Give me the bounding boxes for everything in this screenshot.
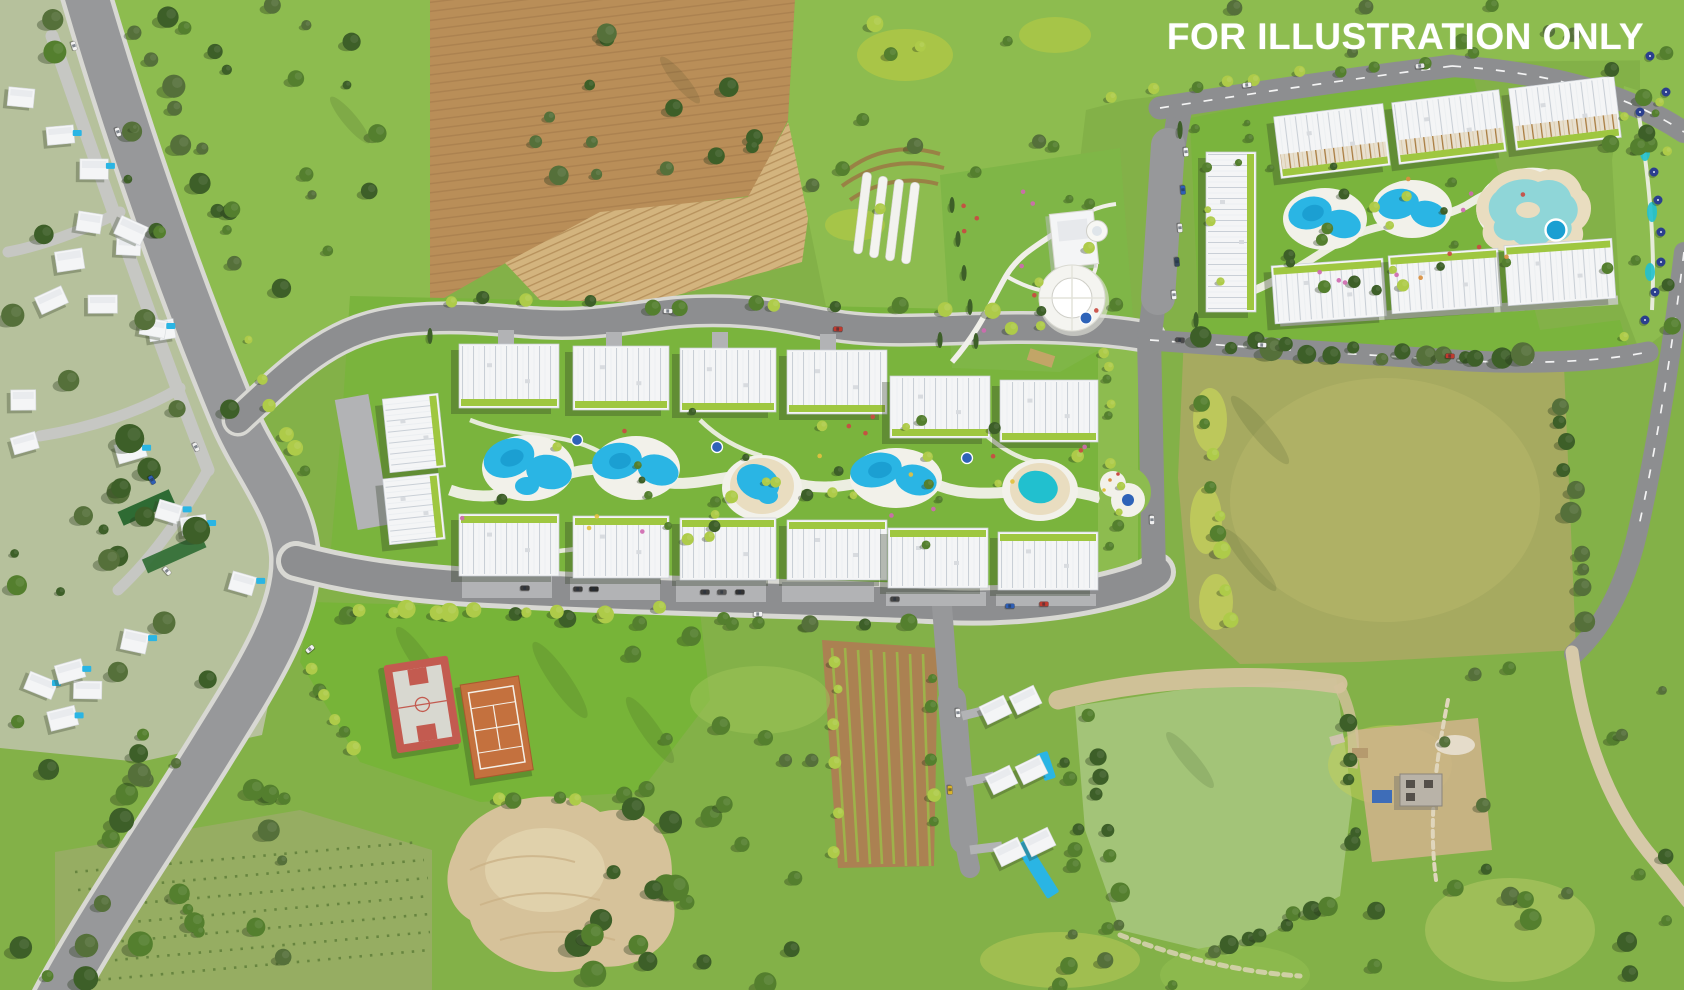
car-windshield — [1448, 354, 1451, 357]
roof-unit — [600, 365, 605, 369]
tree-highlight — [283, 794, 289, 800]
car — [1444, 353, 1454, 359]
tree-highlight — [294, 442, 301, 449]
tree-highlight — [1629, 967, 1636, 974]
tree-highlight — [526, 609, 531, 614]
tree-highlight — [120, 811, 131, 822]
tree-highlight — [648, 492, 652, 496]
apartment-block — [672, 518, 776, 586]
tree-highlight — [833, 848, 838, 853]
tree-highlight — [1053, 142, 1058, 147]
tree-highlight — [47, 762, 56, 771]
tree-highlight — [669, 813, 679, 823]
tree-highlight — [1659, 99, 1663, 103]
tree-highlight — [1559, 400, 1567, 408]
roof-unit — [853, 553, 858, 557]
roof-unit — [1064, 564, 1069, 568]
apartment-block — [375, 473, 446, 551]
flower-shrub — [1406, 177, 1411, 182]
villa — [3, 86, 35, 111]
tree-highlight — [194, 520, 206, 532]
tree-highlight — [120, 481, 129, 490]
tree-highlight — [1333, 164, 1336, 167]
flower-shrub — [1019, 264, 1024, 269]
flower-shrub — [460, 516, 465, 521]
tree-highlight — [714, 522, 719, 527]
window-opening — [1406, 793, 1415, 801]
tree-highlight — [1474, 352, 1482, 360]
tree-highlight — [1074, 844, 1081, 851]
tree-highlight — [1095, 789, 1101, 795]
tree-highlight — [1228, 937, 1237, 946]
tree-highlight — [773, 301, 779, 307]
tree-highlight — [1010, 323, 1016, 329]
roof-unit — [954, 561, 959, 565]
wildflower-patch — [1019, 17, 1091, 53]
parking-apron — [886, 592, 986, 606]
tree-highlight — [103, 526, 108, 531]
tree-highlight — [1172, 981, 1176, 985]
tree-highlight — [556, 607, 562, 613]
car-windshield — [1245, 83, 1248, 87]
tree-highlight — [281, 857, 286, 862]
tree-highlight — [133, 125, 137, 129]
flower-shrub — [1394, 273, 1399, 278]
tree-highlight — [1109, 543, 1113, 547]
flower-shrub — [1021, 189, 1026, 194]
tree-highlight — [228, 402, 237, 411]
tree-canopy — [1177, 121, 1182, 139]
roof-unit — [1463, 282, 1468, 286]
umbrella-pole — [1649, 55, 1651, 57]
plunge-pool — [1080, 312, 1092, 324]
tree-highlight — [138, 934, 149, 945]
tree-highlight — [1482, 800, 1489, 807]
tree-highlight — [1247, 121, 1250, 124]
tree-highlight — [280, 281, 289, 290]
apartment-block — [1496, 238, 1616, 312]
apartment-block — [565, 346, 669, 416]
tree-highlight — [632, 800, 642, 810]
tree-highlight — [944, 304, 951, 311]
tree-highlight — [1529, 911, 1539, 921]
tree-highlight — [1233, 2, 1240, 9]
tree-highlight — [1238, 160, 1241, 163]
tree-highlight — [178, 886, 187, 895]
unit-divisions — [789, 522, 885, 578]
flower-shrub — [961, 204, 966, 209]
villa — [71, 210, 103, 237]
tree-highlight — [1351, 836, 1358, 843]
tree-highlight — [1621, 730, 1627, 736]
tree-highlight — [1212, 449, 1218, 455]
tree-highlight — [1666, 917, 1671, 922]
car-windshield — [1181, 188, 1185, 191]
tree-highlight — [794, 873, 801, 880]
tree-highlight — [806, 490, 812, 496]
tree-highlight — [323, 690, 328, 695]
car-windshield — [1418, 64, 1421, 68]
car-windshield — [1172, 293, 1176, 296]
tree-highlight — [591, 964, 603, 976]
roof-unit — [1347, 292, 1352, 296]
tree-highlight — [1373, 63, 1378, 68]
masterplan-canvas — [0, 0, 1684, 990]
tree-highlight — [764, 975, 774, 985]
car — [589, 587, 599, 593]
tree-highlight — [599, 912, 609, 922]
car — [700, 590, 710, 596]
tree-highlight — [1206, 164, 1211, 169]
tree-highlight — [11, 306, 21, 316]
tree-highlight — [690, 629, 699, 638]
tree-highlight — [641, 477, 644, 480]
tree-highlight — [1583, 614, 1592, 623]
tree-highlight — [1207, 207, 1210, 210]
car-windshield — [738, 590, 741, 593]
flower-shrub — [962, 229, 967, 234]
balcony-planters — [461, 516, 557, 523]
balcony-planters — [682, 403, 774, 410]
apartment-block — [779, 350, 887, 420]
tree-highlight — [1007, 37, 1012, 42]
tree-highlight — [172, 77, 182, 87]
flower-shrub — [1094, 308, 1099, 313]
balcony-planters — [1247, 154, 1254, 310]
tree-highlight — [1355, 829, 1360, 834]
roof-unit — [1239, 240, 1244, 244]
tree-highlight — [1474, 669, 1480, 675]
flower-shrub — [847, 424, 852, 429]
flower-shrub — [1461, 208, 1466, 213]
roof-unit — [1220, 200, 1225, 204]
tree-highlight — [906, 424, 910, 428]
tree-highlight — [639, 618, 646, 625]
tree-highlight — [1662, 687, 1666, 691]
tree-highlight — [175, 759, 180, 764]
tree-highlight — [811, 755, 817, 761]
tree-highlight — [921, 416, 926, 421]
tree-highlight — [1569, 504, 1579, 514]
car-windshield — [1178, 226, 1182, 229]
tree-highlight — [764, 732, 771, 739]
tree-highlight — [723, 798, 730, 805]
car-windshield — [893, 597, 896, 600]
tree-highlight — [731, 619, 737, 625]
flower-shrub — [931, 507, 936, 512]
tree-highlight — [1491, 0, 1497, 6]
balcony-planters — [890, 530, 986, 537]
tree-highlight — [899, 299, 907, 307]
lagoon-island — [1516, 202, 1540, 218]
roof-unit — [400, 497, 405, 502]
car — [735, 590, 745, 596]
tree-highlight — [1374, 961, 1381, 968]
tree-highlight — [1103, 349, 1108, 354]
tree-highlight — [1104, 954, 1111, 961]
apartment-block — [451, 514, 559, 582]
tree-highlight — [612, 867, 618, 873]
tree-highlight — [60, 588, 64, 592]
car — [1005, 604, 1015, 610]
car — [753, 612, 763, 618]
tree-highlight — [1454, 241, 1458, 245]
balcony-planters — [682, 520, 774, 527]
car — [890, 597, 900, 603]
flower-shrub — [1504, 255, 1509, 260]
tree-highlight — [1227, 77, 1232, 82]
tree-highlight — [1288, 251, 1293, 256]
tree-highlight — [557, 168, 566, 177]
tree-highlight — [15, 578, 24, 587]
tree-highlight — [821, 422, 826, 427]
tree-highlight — [51, 12, 61, 22]
tree-highlight — [226, 66, 231, 71]
tree-highlight — [686, 897, 693, 904]
villa — [76, 159, 109, 183]
car — [1241, 82, 1252, 89]
tree-highlight — [1153, 84, 1158, 89]
villa-roof-upper — [82, 161, 106, 168]
tree-highlight — [285, 429, 292, 436]
tree-highlight — [832, 489, 837, 494]
car — [954, 707, 960, 717]
tree-highlight — [1195, 125, 1199, 129]
garden-pool — [148, 635, 157, 641]
tree-highlight — [928, 480, 933, 485]
umbrella-pole — [1657, 199, 1659, 201]
roof-unit — [853, 385, 858, 389]
tree-highlight — [1219, 512, 1224, 517]
tree-highlight — [1642, 91, 1650, 99]
car — [1173, 256, 1180, 266]
apartment-block — [882, 376, 990, 444]
tree-highlight — [1249, 135, 1253, 139]
tree-highlight — [838, 467, 842, 471]
tree-highlight — [659, 602, 665, 608]
tree-highlight — [1402, 281, 1407, 286]
flower-shrub — [1521, 192, 1526, 197]
tree-highlight — [137, 746, 146, 755]
tree-highlight — [67, 373, 77, 383]
tree-highlight — [1645, 127, 1653, 135]
umbrella-pole — [1660, 231, 1662, 233]
tree-highlight — [975, 168, 980, 173]
car — [1414, 63, 1425, 70]
apartment-block — [1198, 152, 1256, 318]
tree-highlight — [709, 533, 714, 538]
tree-highlight — [1059, 979, 1066, 986]
tree-highlight — [498, 794, 504, 800]
spa-pool — [572, 435, 583, 446]
tree-highlight — [47, 972, 52, 977]
tree-highlight — [125, 786, 135, 796]
roof-unit — [423, 511, 428, 516]
tree-highlight — [53, 43, 63, 53]
tree-highlight — [1667, 280, 1673, 286]
tree-highlight — [1655, 110, 1659, 114]
basketball-court — [377, 655, 462, 759]
tree-highlight — [834, 658, 839, 663]
tree-highlight — [1072, 931, 1077, 936]
tree-highlight — [715, 498, 720, 503]
tree-highlight — [1609, 137, 1617, 145]
tree-highlight — [1521, 345, 1532, 356]
blue-tarp-shed — [1372, 790, 1392, 803]
car-windshield — [956, 711, 960, 714]
tree-highlight — [17, 717, 23, 723]
tree-highlight — [179, 137, 188, 146]
tree-highlight — [1374, 203, 1379, 208]
tree-highlight — [549, 113, 554, 118]
tree-highlight — [327, 247, 332, 252]
pool-water — [758, 488, 778, 504]
garden-pool — [106, 163, 115, 169]
tree-highlight — [206, 673, 214, 681]
tree-highlight — [109, 832, 117, 840]
car — [1182, 146, 1189, 156]
tree-highlight — [85, 937, 96, 948]
tree-highlight — [1349, 755, 1355, 761]
tree-highlight — [1509, 889, 1517, 897]
flower-shrub — [1418, 275, 1423, 280]
tree-highlight — [255, 920, 263, 928]
unit-divisions — [682, 350, 774, 410]
car-windshield — [1178, 338, 1181, 342]
car — [520, 586, 530, 592]
tree-highlight — [1072, 860, 1079, 867]
tree-highlight — [1197, 83, 1202, 88]
unit-divisions — [682, 520, 774, 578]
car-windshield — [720, 590, 723, 593]
tree-highlight — [282, 951, 289, 958]
tree-highlight — [1581, 581, 1589, 589]
tree-highlight — [1285, 339, 1291, 345]
tree-highlight — [1099, 771, 1106, 778]
tree-highlight — [1635, 256, 1640, 261]
car — [1170, 289, 1177, 299]
villa — [7, 390, 36, 414]
phase1-east-lawn — [1098, 340, 1138, 576]
tree-highlight — [267, 822, 277, 832]
tree-highlight — [1562, 465, 1568, 471]
apartment-block — [565, 516, 669, 584]
tree-highlight — [19, 939, 29, 949]
window-opening — [1406, 780, 1415, 788]
tree-highlight — [790, 943, 797, 950]
tree-highlight — [1353, 277, 1359, 283]
parking-apron — [712, 332, 728, 348]
tree-highlight — [652, 302, 659, 309]
round-pool — [1546, 220, 1567, 241]
unit-divisions — [461, 346, 557, 406]
tree-highlight — [834, 758, 840, 764]
car-windshield — [1175, 260, 1179, 263]
tree-highlight — [353, 743, 360, 750]
flower-shrub — [640, 529, 645, 534]
villa-roof-upper — [76, 683, 100, 689]
roof-unit — [707, 367, 712, 371]
tree-highlight — [1110, 401, 1114, 405]
tree-highlight — [1352, 343, 1357, 348]
tree-highlight — [559, 793, 564, 798]
tree-highlight — [727, 80, 736, 89]
flower-shrub — [595, 514, 600, 519]
umbrella-pole — [1639, 111, 1641, 113]
tree-highlight — [1486, 865, 1491, 870]
tree-highlight — [1270, 165, 1273, 168]
tree-highlight — [723, 614, 729, 620]
tree-highlight — [1107, 826, 1113, 832]
tree-highlight — [591, 138, 596, 143]
tree-highlight — [1290, 259, 1294, 263]
car-windshield — [836, 327, 839, 330]
tree-highlight — [1230, 614, 1237, 621]
tree-highlight — [436, 607, 443, 614]
tree-highlight — [1451, 179, 1455, 183]
apartment-block — [992, 380, 1098, 448]
tree-canopy — [955, 231, 960, 247]
tree-highlight — [358, 606, 364, 612]
tree-highlight — [1069, 773, 1075, 779]
tree-highlight — [451, 298, 456, 303]
tree-canopy — [1193, 312, 1198, 328]
parking-apron — [820, 334, 836, 350]
tree-highlight — [919, 42, 924, 47]
apartment-block — [374, 393, 446, 479]
tree-highlight — [1253, 76, 1258, 81]
tree-highlight — [751, 142, 757, 148]
flower-shrub — [1079, 448, 1084, 453]
sandy-ground-light — [485, 828, 605, 912]
tree-highlight — [666, 163, 672, 169]
tree-highlight — [214, 46, 221, 53]
tree-highlight — [1204, 420, 1209, 425]
tree-highlight — [150, 54, 156, 60]
tree-highlight — [703, 956, 710, 963]
tree-highlight — [678, 302, 685, 309]
balcony-planters — [789, 522, 885, 529]
tree-highlight — [932, 675, 936, 679]
tree-highlight — [128, 428, 141, 441]
tree-highlight — [376, 126, 384, 134]
apartment-block — [1263, 258, 1387, 330]
flower-shrub — [863, 431, 868, 436]
tree-highlight — [832, 720, 837, 725]
villa — [50, 248, 85, 276]
tree-highlight — [393, 609, 398, 614]
tree-highlight — [198, 928, 203, 933]
garden-pool — [75, 712, 84, 718]
car-windshield — [703, 590, 706, 593]
car — [1148, 514, 1154, 524]
tree-highlight — [248, 337, 252, 341]
tree-canopy — [937, 332, 942, 348]
tree-highlight — [1327, 899, 1336, 908]
unfinished-building — [1400, 774, 1442, 806]
tree-highlight — [1639, 870, 1644, 875]
tree-highlight — [566, 612, 574, 620]
apartment-block — [672, 348, 776, 418]
clubhouse-roof-deck — [1057, 218, 1089, 241]
tree-highlight — [1440, 263, 1444, 267]
tree-highlight — [1299, 67, 1304, 72]
tree-highlight — [645, 783, 652, 790]
tree-highlight — [1626, 934, 1635, 943]
tree-highlight — [1118, 921, 1123, 926]
roof-unit — [1027, 399, 1032, 403]
tree-highlight — [1406, 192, 1411, 197]
